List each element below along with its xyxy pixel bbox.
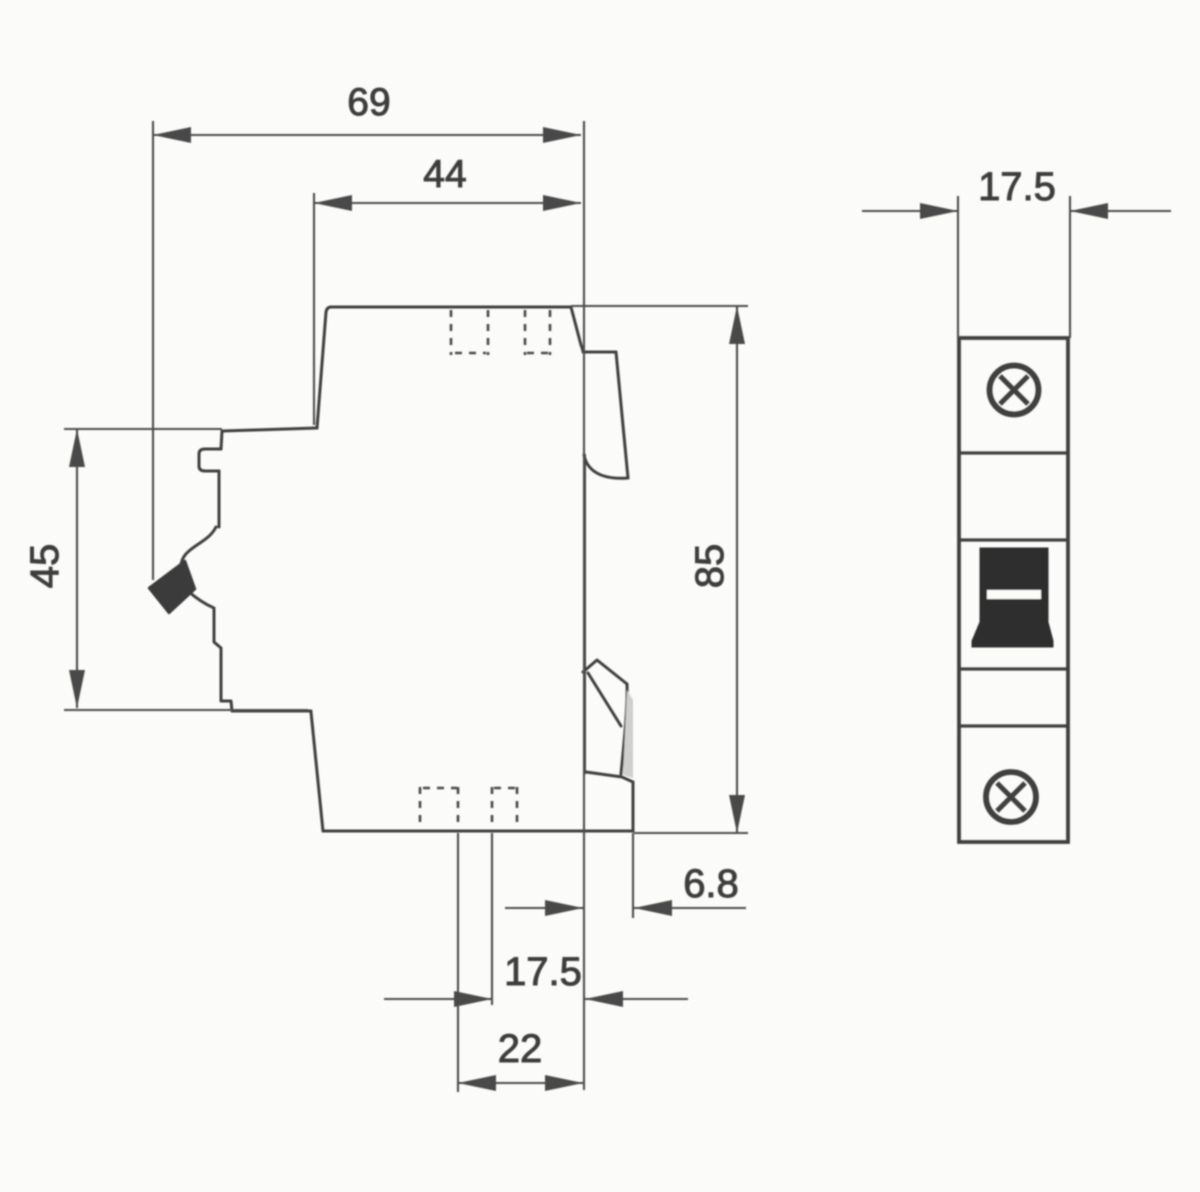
svg-text:45: 45 [23,544,67,589]
svg-text:44: 44 [423,153,466,196]
svg-text:6.8: 6.8 [683,862,739,906]
svg-text:69: 69 [347,81,390,124]
svg-text:85: 85 [688,544,732,589]
svg-text:22: 22 [498,1027,543,1071]
svg-text:17.5: 17.5 [978,165,1056,209]
svg-text:17.5: 17.5 [504,950,582,994]
